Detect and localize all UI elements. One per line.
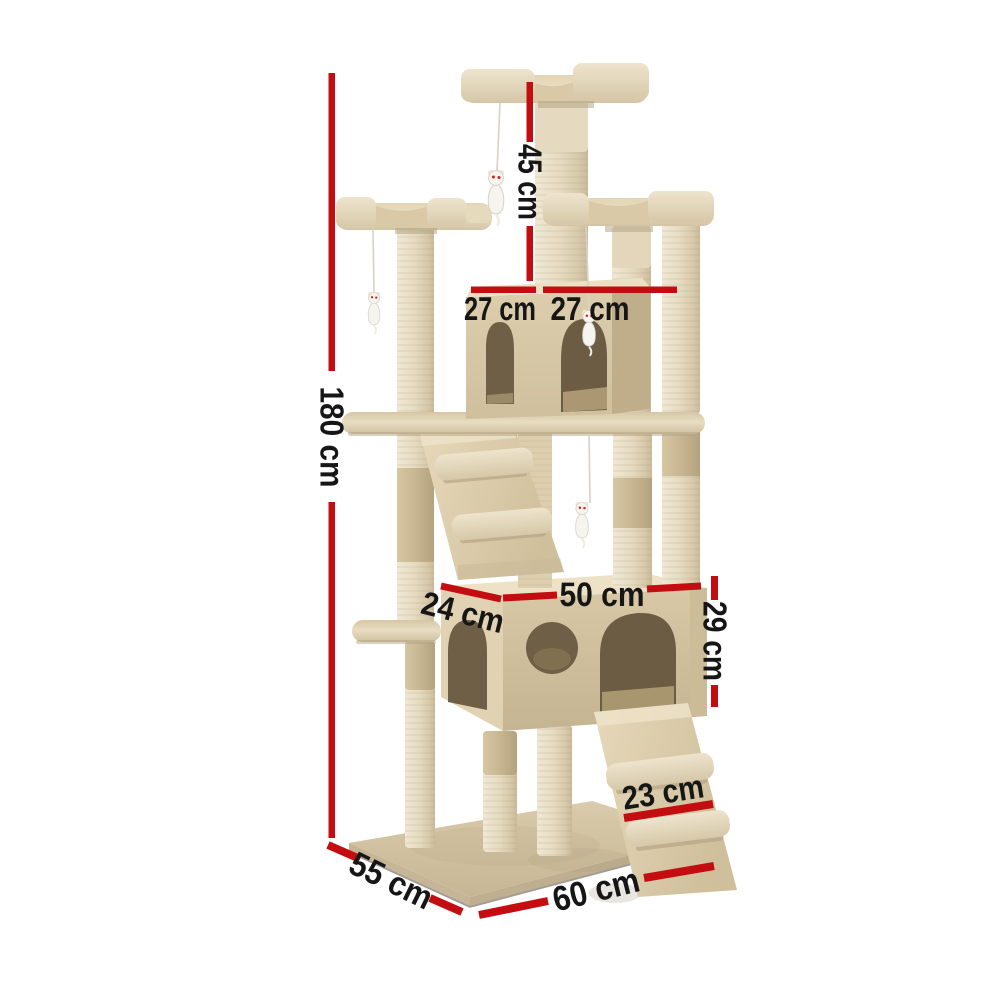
svg-text:180 cm: 180 cm (314, 387, 351, 488)
svg-text:27 cm: 27 cm (550, 290, 629, 327)
svg-text:29 cm: 29 cm (697, 601, 734, 681)
svg-text:45 cm: 45 cm (512, 144, 549, 220)
svg-text:50 cm: 50 cm (559, 576, 644, 614)
svg-text:27 cm: 27 cm (464, 290, 536, 327)
